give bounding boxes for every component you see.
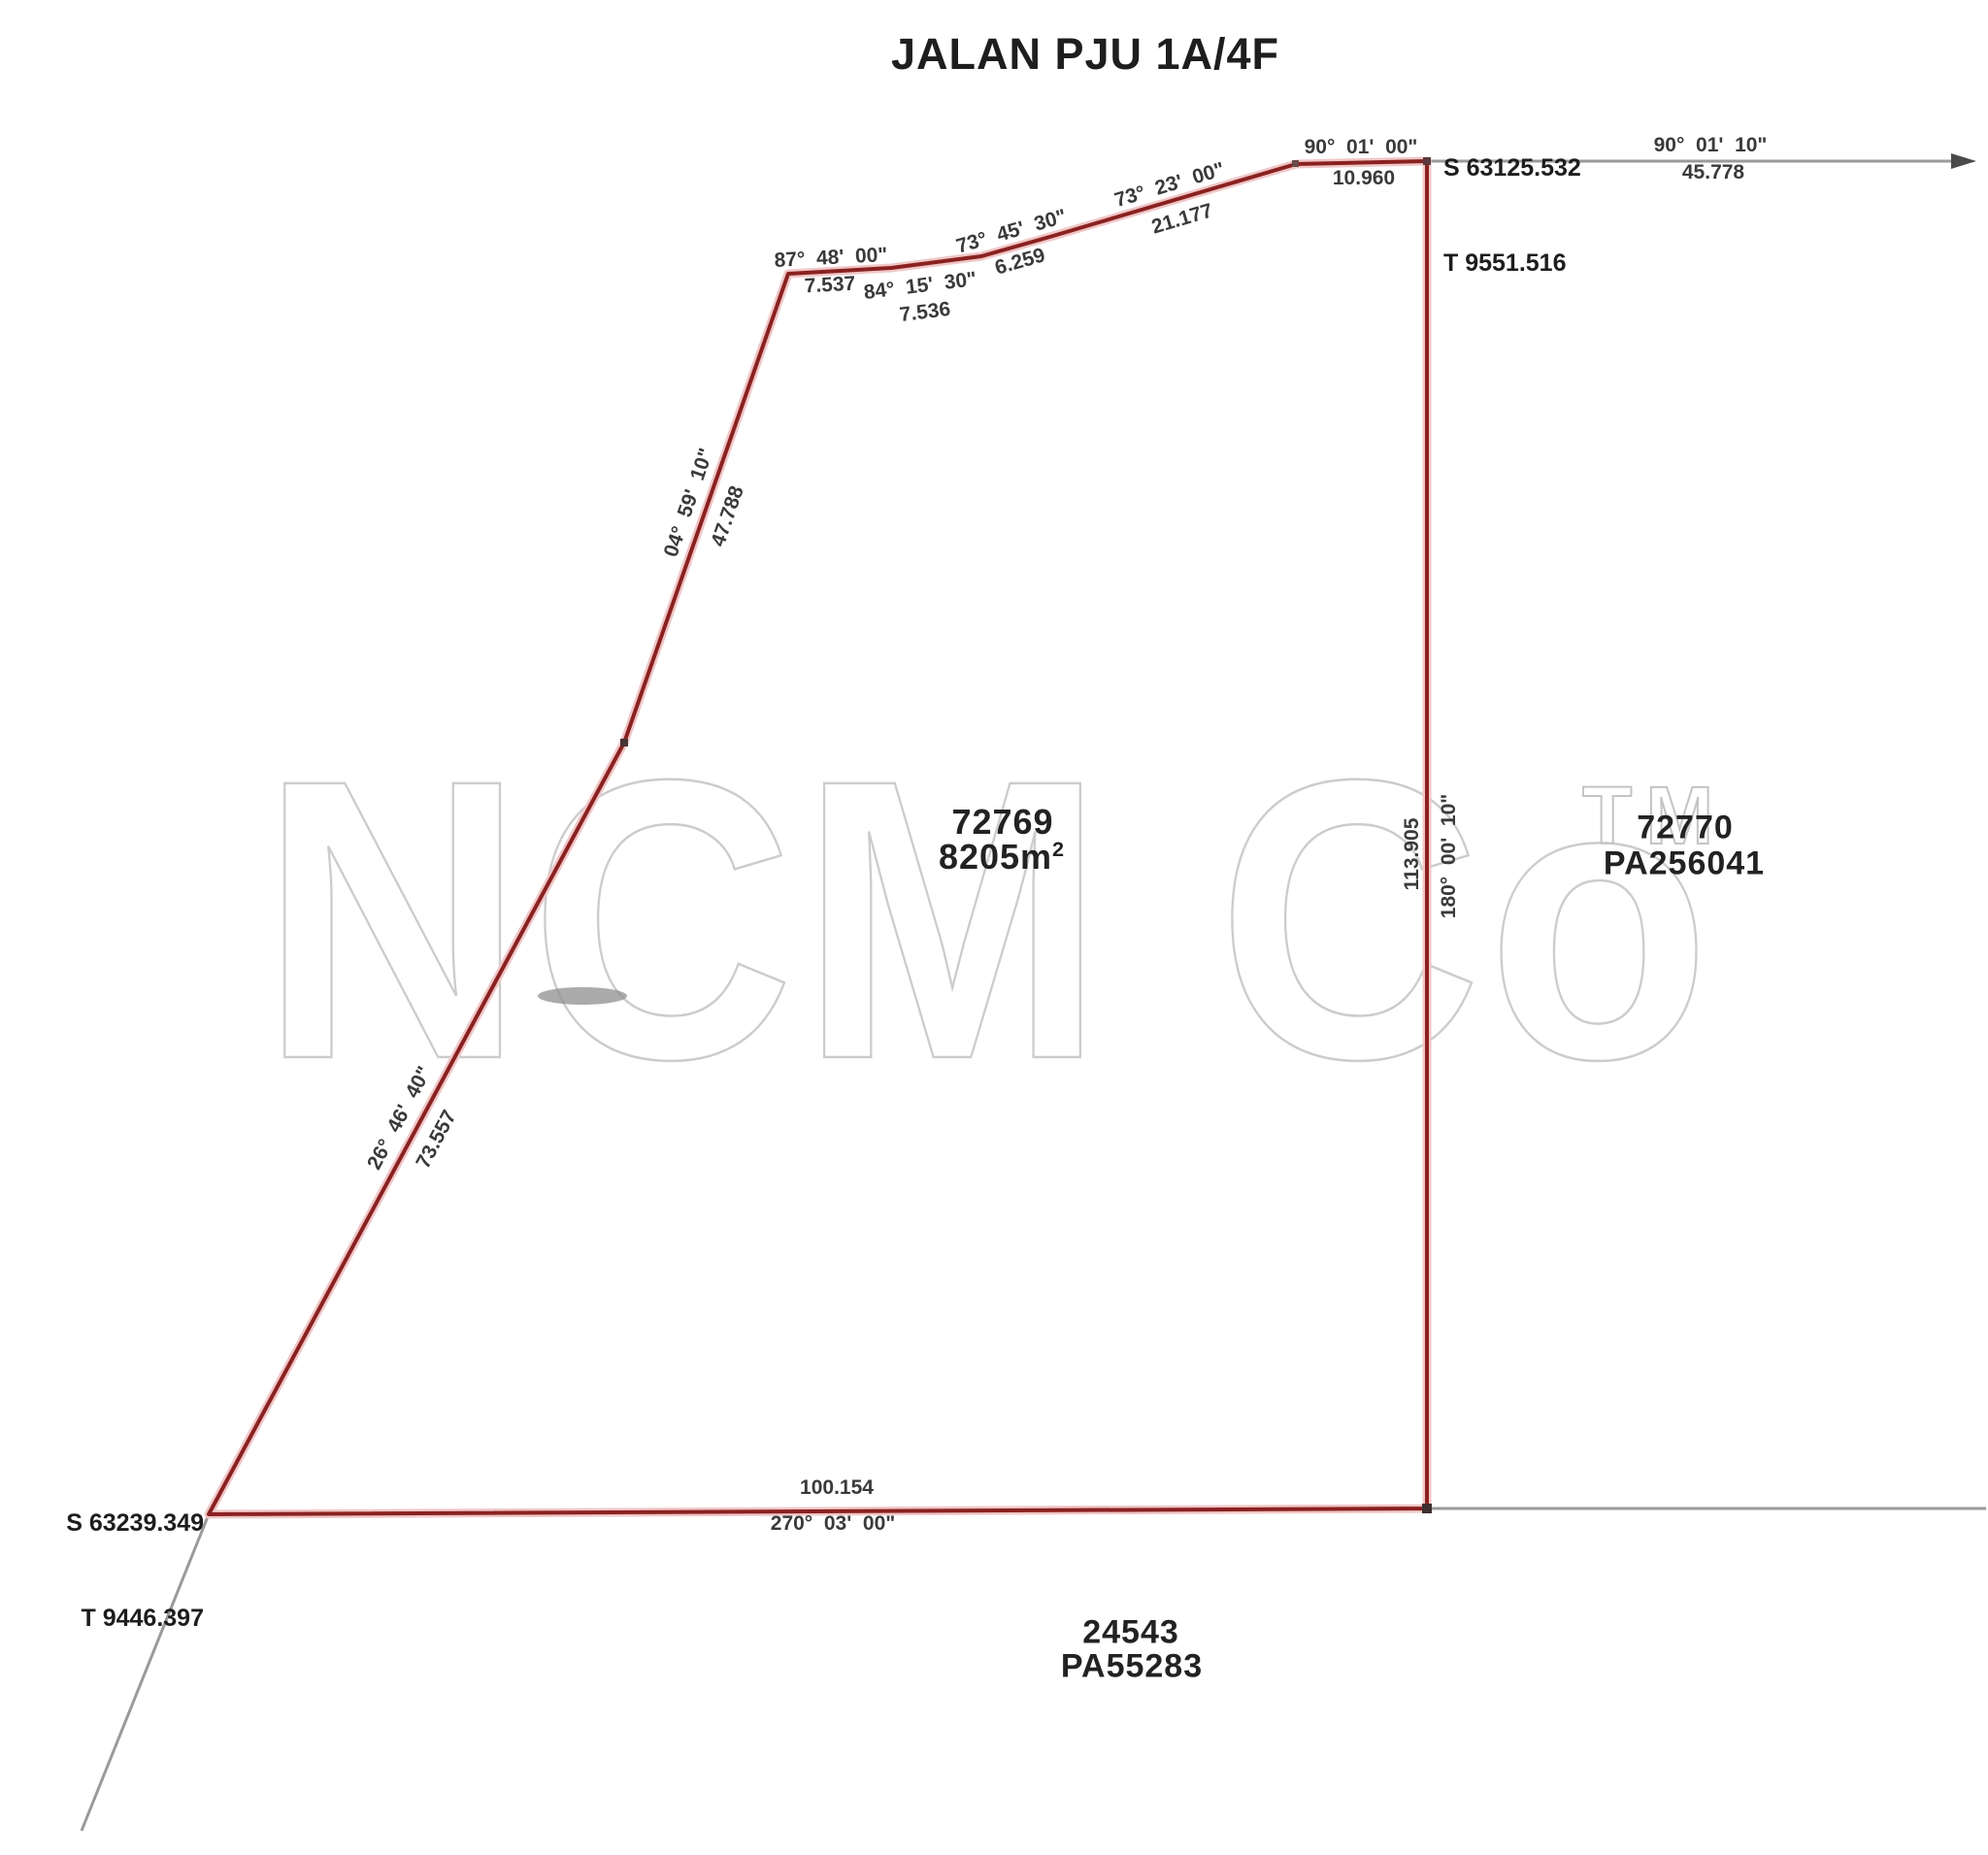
plan-linework [0,0,1988,1855]
vertex-dot-top [1292,160,1299,167]
bearing-label-south-side: 270° 03' 00" [771,1512,895,1536]
bearing-label-top-1: 90° 01' 00" [1305,136,1418,159]
station-easting: T 9551.516 [1443,248,1581,280]
south-lot-plan-number: PA55283 [1061,1648,1203,1686]
vertex-dot-northeast [1423,157,1431,165]
vertex-dot-west-bend [620,739,628,746]
vertex-dot-southeast [1422,1504,1432,1513]
station-northing: S 63239.349 [39,1507,204,1540]
south-lot-number: 24543 [1082,1614,1179,1652]
bearing-label-east-side: 180° 00' 10" [1438,794,1461,918]
distance-label-top-5: 7.537 [804,273,856,299]
subject-lot-area: 8205m2 [939,837,1065,878]
lot-boundary-line [209,161,1427,1514]
station-coordinates-southwest: S 63239.349 T 9446.397 [39,1444,204,1697]
distance-label-top-1: 10.960 [1333,167,1395,190]
plan-title: JALAN PJU 1A/4F [891,29,1279,80]
watermark-shadow-smudge [538,987,627,1005]
subject-lot-area-exponent: 2 [1052,837,1065,861]
east-lot-plan-number: PA256041 [1604,845,1765,883]
survey-plan-page: NCM Co TM JALAN PJU 1A/4F S 63125.532 T … [0,0,1988,1855]
arrowhead-marker [1951,153,1976,169]
subject-lot-area-value: 8205m [939,837,1052,877]
distance-label-east-side: 113.905 [1401,818,1424,891]
bearing-label-road-east: 90° 01' 10" [1654,134,1768,157]
station-northing: S 63125.532 [1443,152,1581,184]
station-easting: T 9446.397 [39,1603,204,1635]
distance-label-road-east: 45.778 [1682,161,1744,184]
station-coordinates-northeast: S 63125.532 T 9551.516 [1443,89,1581,342]
distance-label-south-side: 100.154 [800,1476,874,1500]
east-lot-number: 72770 [1637,810,1734,847]
lot-boundary-halo [209,161,1427,1514]
